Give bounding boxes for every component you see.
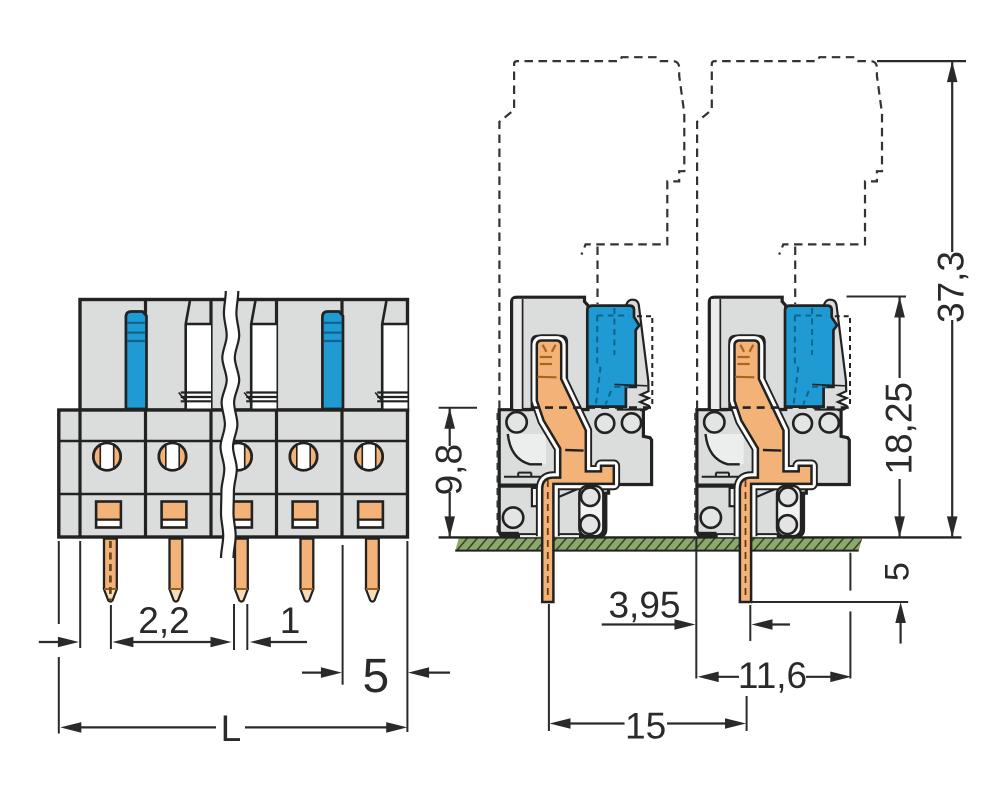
svg-text:18,25: 18,25	[879, 382, 920, 475]
svg-text:5: 5	[363, 650, 390, 703]
svg-text:9,8: 9,8	[429, 444, 470, 495]
svg-text:1: 1	[280, 600, 301, 641]
svg-text:L: L	[221, 708, 242, 749]
svg-text:15: 15	[625, 706, 666, 747]
svg-text:2,2: 2,2	[138, 600, 189, 641]
svg-text:37,3: 37,3	[931, 251, 972, 323]
svg-text:3,95: 3,95	[608, 585, 680, 626]
svg-text:11,6: 11,6	[738, 655, 807, 696]
svg-text:5: 5	[879, 562, 917, 581]
